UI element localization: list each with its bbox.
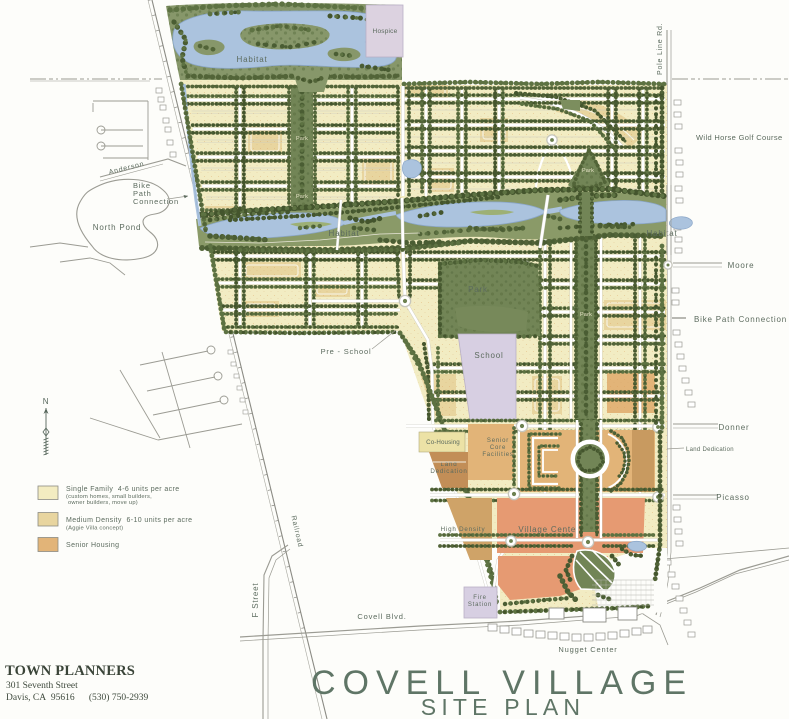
svg-text:Nugget Center: Nugget Center — [558, 645, 617, 654]
svg-text:N: N — [43, 397, 50, 406]
svg-text:Bike Path Connection: Bike Path Connection — [694, 315, 787, 324]
svg-text:F Street: F Street — [251, 583, 260, 618]
svg-text:Park: Park — [296, 194, 308, 200]
svg-text:Medium Density 6-10 units per: Medium Density 6-10 units per acre — [66, 517, 192, 524]
svg-text:Core: Core — [490, 445, 506, 451]
svg-text:Co-Housing: Co-Housing — [426, 439, 460, 446]
svg-text:High Density: High Density — [441, 526, 486, 533]
svg-text:SITE PLAN: SITE PLAN — [421, 694, 585, 719]
svg-text:TOWN PLANNERS: TOWN PLANNERS — [5, 663, 135, 679]
svg-text:Moore: Moore — [728, 261, 755, 270]
svg-text:Park: Park — [296, 136, 308, 142]
svg-text:Single Family 4-6 units per a: Single Family 4-6 units per acre — [66, 486, 180, 493]
svg-text:Village Center: Village Center — [518, 525, 579, 534]
svg-text:Park: Park — [580, 312, 592, 318]
svg-text:Senior Housing: Senior Housing — [66, 542, 119, 549]
svg-text:Station: Station — [468, 602, 492, 608]
svg-text:Park: Park — [468, 285, 488, 294]
svg-text:Pole Line Rd.: Pole Line Rd. — [657, 23, 664, 75]
svg-text:owner builders, move up): owner builders, move up) — [68, 500, 138, 506]
svg-text:Park: Park — [582, 168, 594, 174]
svg-text:Pre - School: Pre - School — [321, 347, 372, 356]
svg-text:Hospice: Hospice — [373, 28, 398, 35]
svg-text:Habitat: Habitat — [329, 229, 360, 238]
svg-text:Facilities: Facilities — [482, 452, 513, 458]
svg-text:Picasso: Picasso — [716, 493, 750, 502]
svg-text:Habitat: Habitat — [647, 229, 678, 238]
svg-text:Habitat: Habitat — [237, 55, 268, 64]
svg-text:Land Dedication: Land Dedication — [686, 447, 734, 453]
svg-text:(Aggie Villa concept): (Aggie Villa concept) — [66, 526, 123, 532]
svg-text:Fire: Fire — [473, 595, 487, 601]
svg-text:Covell Blvd.: Covell Blvd. — [357, 612, 406, 621]
svg-text:North Pond: North Pond — [93, 223, 141, 232]
svg-text:Senior: Senior — [487, 438, 509, 444]
svg-text:Dedication: Dedication — [430, 468, 467, 475]
svg-text:School: School — [474, 351, 503, 360]
svg-text:Donner: Donner — [718, 423, 749, 432]
svg-text:Davis, CA 95616 (530) 75: Davis, CA 95616 (530) 750-2939 — [6, 692, 148, 703]
svg-text:Wild Horse Golf Course: Wild Horse Golf Course — [696, 133, 782, 142]
svg-text:301 Seventh Street: 301 Seventh Street — [6, 681, 78, 691]
